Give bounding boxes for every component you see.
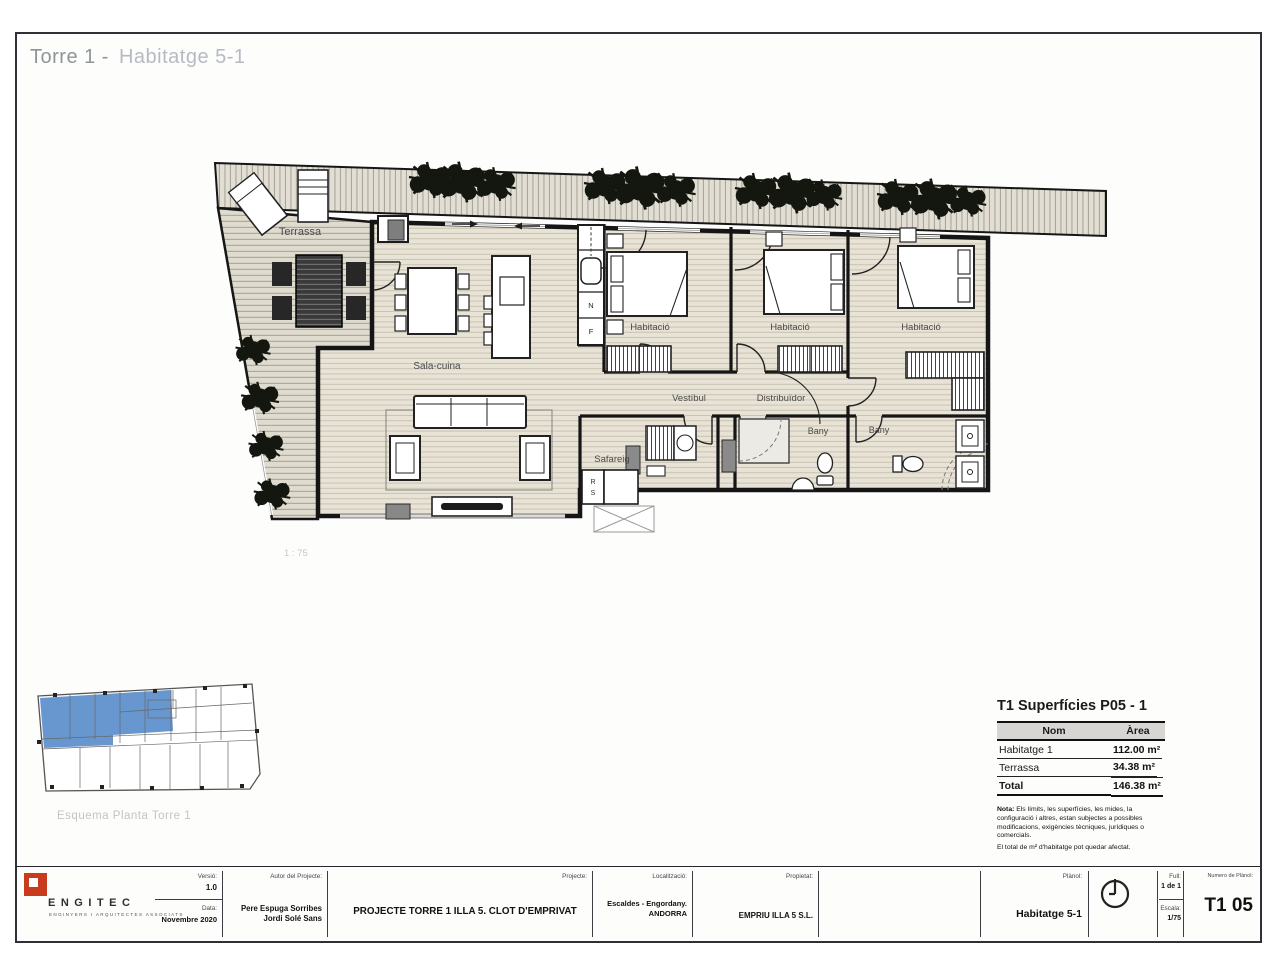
outdoor-chair (346, 296, 366, 320)
planol-value: Habitatge 5-1 (945, 908, 1082, 920)
numero-value: T1 05 (1187, 895, 1253, 917)
entry-closet (378, 216, 408, 242)
numero-label: Numero de Plànol: (1187, 873, 1253, 879)
projecte-value: PROJECTE TORRE 1 ILLA 5. CLOT D'EMPRIVAT (343, 906, 587, 917)
surfaces-title: T1 Superfícies P05 - 1 (997, 698, 1167, 714)
table-row: Habitatge 1 112.00 m² (997, 740, 1165, 759)
col-header-area: Àrea (1111, 722, 1165, 740)
projecte-label: Projecte: (495, 873, 587, 880)
room-label-vestibul: Vestíbul (672, 393, 706, 404)
room-label-bany2: Bany (869, 425, 890, 435)
localitzacio-line2: ANDORRA (599, 909, 687, 918)
divider (818, 871, 819, 937)
divider (1088, 871, 1089, 937)
divider (1183, 871, 1184, 937)
total-area: 146.38 m² (1111, 777, 1163, 797)
versio-value: 1.0 (155, 883, 217, 892)
outdoor-chair (346, 262, 366, 286)
void-shaft (594, 506, 654, 532)
versio-label: Versió: (155, 873, 217, 880)
room-label-safareig: Safareig (594, 454, 629, 465)
divider (1157, 871, 1158, 937)
key-plan-caption: Esquema Planta Torre 1 (57, 810, 191, 822)
shaft-r-label: R (590, 479, 595, 486)
autor-line1: Pere Espuga Sorribes (195, 904, 322, 913)
surfaces-note: Nota: Els límits, les superfícies, les m… (997, 806, 1157, 853)
divider (692, 871, 693, 937)
fridge-label: N (588, 301, 593, 310)
shaft-s-label: S (591, 490, 596, 497)
room-label-distribuidor: Distribuïdor (757, 393, 806, 404)
surfaces-panel: T1 Superfícies P05 - 1 Nom Àrea Habitatg… (997, 698, 1167, 853)
propietat-value: EMPRIU ILLA 5 S.L. (703, 911, 813, 920)
room-label-terrassa: Terrassa (279, 226, 322, 238)
room-label-hab2: Habitació (770, 322, 810, 333)
outdoor-table (296, 255, 342, 327)
drawing-sheet: Torre 1 -Habitatge 5-1 (0, 0, 1280, 960)
localitzacio-line1: Escaldes - Engordany. (599, 899, 687, 908)
row-name: Terrassa (997, 759, 1111, 777)
full-label: Full: (1159, 873, 1181, 880)
row-name: Habitatge 1 (997, 740, 1111, 759)
title-block: ENGITEC ENGINYERS I ARQUITECTES ASSOCIAT… (15, 866, 1260, 942)
note-footer: El total de m² d'habitatge pot quedar af… (997, 844, 1157, 853)
outdoor-chair (272, 296, 292, 320)
planol-label: Plànol: (990, 873, 1082, 880)
autor-line2: Jordi Solé Sans (195, 914, 322, 923)
room-label-hab1: Habitació (630, 322, 670, 333)
room-label-hab3: Habitació (901, 322, 941, 333)
sun-lounger-icon (298, 170, 328, 222)
divider (327, 871, 328, 937)
total-name: Total (997, 777, 1111, 796)
autor-label: Autor del Projecte: (215, 873, 322, 880)
surfaces-table: Nom Àrea Habitatge 1 112.00 m² Terrassa … (997, 721, 1165, 796)
dining-table (395, 268, 469, 334)
engitec-logo-icon (24, 873, 47, 896)
table-row: Terrassa 34.38 m² (997, 759, 1165, 777)
table-total-row: Total 146.38 m² (997, 777, 1165, 796)
oven-label: F (589, 327, 594, 336)
divider (592, 871, 593, 937)
row-area: 34.38 m² (1111, 759, 1157, 777)
outdoor-chair (272, 262, 292, 286)
north-arrow-icon (1097, 875, 1133, 911)
room-label-sala: Sala-cuina (413, 361, 461, 372)
divider (155, 899, 222, 900)
escala-label: Escala: (1155, 905, 1181, 912)
logo-name: ENGITEC (48, 897, 135, 909)
note-title: Nota: (997, 806, 1014, 813)
scale-note: 1 : 75 (284, 548, 308, 559)
key-plan: Esquema Planta Torre 1 (37, 684, 260, 822)
escala-value: 1/75 (1151, 915, 1181, 922)
row-area: 112.00 m² (1111, 741, 1162, 759)
room-label-bany1: Bany (808, 426, 829, 436)
col-header-nom: Nom (997, 722, 1111, 740)
divider (980, 871, 981, 937)
full-value: 1 de 1 (1151, 883, 1181, 890)
propietat-label: Propietat: (728, 873, 813, 880)
note-body: Els límits, les superfícies, les mides, … (997, 806, 1144, 839)
kitchen-units: N F (578, 225, 608, 345)
localitzacio-label: Localització: (605, 873, 687, 880)
divider (1159, 899, 1183, 900)
